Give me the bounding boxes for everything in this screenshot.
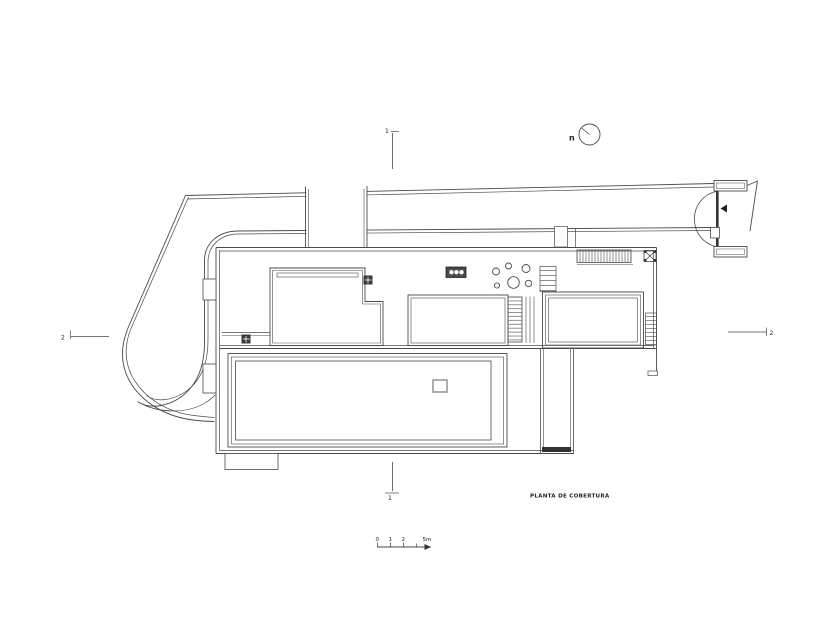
small-stair — [540, 267, 556, 292]
section-label-left: 2 — [61, 335, 65, 342]
road-edge-diagonal — [750, 181, 758, 232]
skylight-circle — [494, 283, 499, 288]
right-roof-plane-outer — [543, 292, 644, 348]
bottom-protrusion — [225, 454, 278, 470]
roof-hatch-square-1 — [364, 276, 373, 285]
gate-small-post — [711, 228, 720, 239]
boundary-diagonal-outer — [123, 196, 215, 422]
gate-arrow-marker — [721, 205, 728, 213]
left-protrusion-upper — [203, 279, 216, 300]
skylight-circle — [522, 265, 530, 273]
skylight-circle — [508, 277, 520, 289]
entrance-gate — [694, 181, 757, 258]
gate-bottom-pillar — [714, 247, 747, 258]
gate-top-pillar — [714, 181, 747, 192]
skylight-circles — [493, 263, 532, 288]
roof-drain-marker — [644, 251, 656, 262]
roof-volume-block — [306, 186, 368, 248]
roof-hatch-square-2 — [242, 335, 251, 344]
scale-end-arrow-icon — [425, 544, 432, 550]
north-label: n — [569, 134, 575, 143]
pool-deck-outer — [228, 354, 507, 448]
top-wall-inner — [188, 187, 715, 199]
top-small-block — [555, 227, 568, 248]
top-wall-outer — [186, 184, 715, 196]
skylight-circle — [525, 280, 531, 286]
scale-label-2: 2 — [402, 537, 406, 543]
scale-label-end: 5m — [423, 537, 432, 543]
mid-roof-inner — [411, 298, 505, 343]
right-roof-plane-mid — [546, 295, 641, 345]
north-indicator: n — [569, 124, 600, 145]
plan-title: PLANTA DE COBERTURA — [530, 494, 610, 500]
section-label-bottom: 1 — [388, 495, 392, 502]
left-protrusion-lower — [203, 364, 216, 393]
roof-vent-unit — [446, 267, 466, 278]
section-marker-top: 1 — [385, 128, 399, 169]
roof-plan-sheet: n 1 1 2 2 0 1 2 5m PLANTA DE COBERTURA — [0, 0, 815, 618]
roof-plan-drawing: n 1 1 2 2 0 1 2 5m PLANTA DE COBERTURA — [0, 0, 815, 618]
section-label-top: 1 — [385, 128, 389, 135]
scale-label-0: 0 — [376, 537, 380, 543]
lower-roof-interior — [228, 349, 574, 454]
roof-hatch-white-square — [433, 380, 447, 392]
ramp-return-edge — [143, 395, 215, 411]
stair-hatch — [508, 297, 522, 342]
right-roof-plane-inner — [549, 298, 638, 342]
road-edge-connector — [747, 181, 758, 186]
skylight-circle — [493, 268, 500, 275]
skylight-circle — [506, 263, 512, 269]
skylight-strip — [277, 273, 358, 277]
mid-roof-outer — [408, 295, 508, 346]
pool-deck-mid — [232, 357, 504, 444]
upper-roof-interior — [222, 250, 657, 348]
top-stair-run — [577, 250, 631, 263]
section-marker-bottom: 1 — [385, 462, 399, 502]
gate-door-swing-upper — [694, 192, 716, 220]
north-needle — [581, 128, 590, 135]
ramp-curve-outer — [138, 231, 238, 406]
ramp-curve-inner — [147, 234, 238, 400]
pool-edge — [236, 361, 492, 440]
right-wall-foot — [648, 371, 658, 376]
side-ladder — [646, 313, 657, 345]
scale-label-1: 1 — [389, 537, 393, 543]
section-marker-left: 2 — [61, 331, 109, 342]
section-label-right: 2 — [770, 330, 774, 337]
scale-bar: 0 1 2 5m — [376, 537, 432, 550]
right-strip-dark-bar — [542, 447, 571, 452]
section-marker-right: 2 — [728, 328, 774, 338]
